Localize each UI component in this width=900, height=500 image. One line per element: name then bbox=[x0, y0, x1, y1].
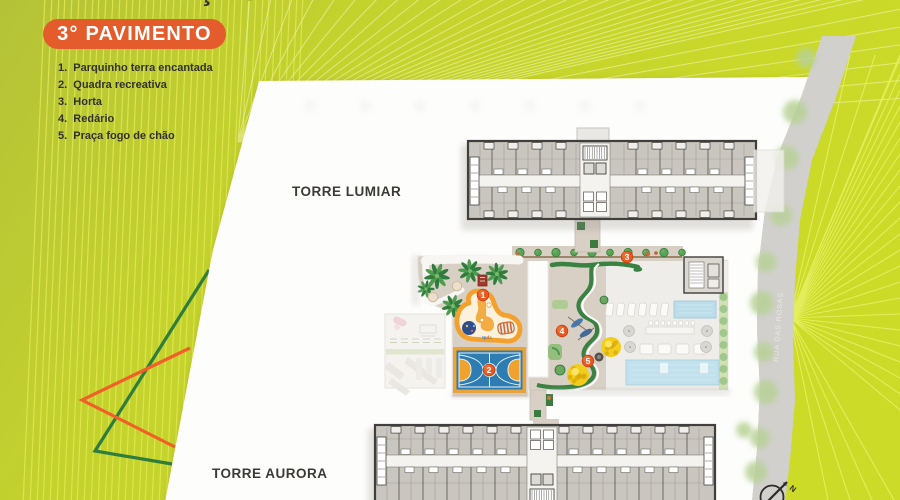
svg-text:3: 3 bbox=[625, 252, 630, 262]
svg-text:1: 1 bbox=[481, 290, 486, 300]
svg-text:5: 5 bbox=[586, 356, 591, 366]
svg-text:2: 2 bbox=[487, 365, 492, 375]
svg-text:tpda: tpda bbox=[482, 335, 492, 340]
svg-text:4: 4 bbox=[560, 326, 565, 336]
